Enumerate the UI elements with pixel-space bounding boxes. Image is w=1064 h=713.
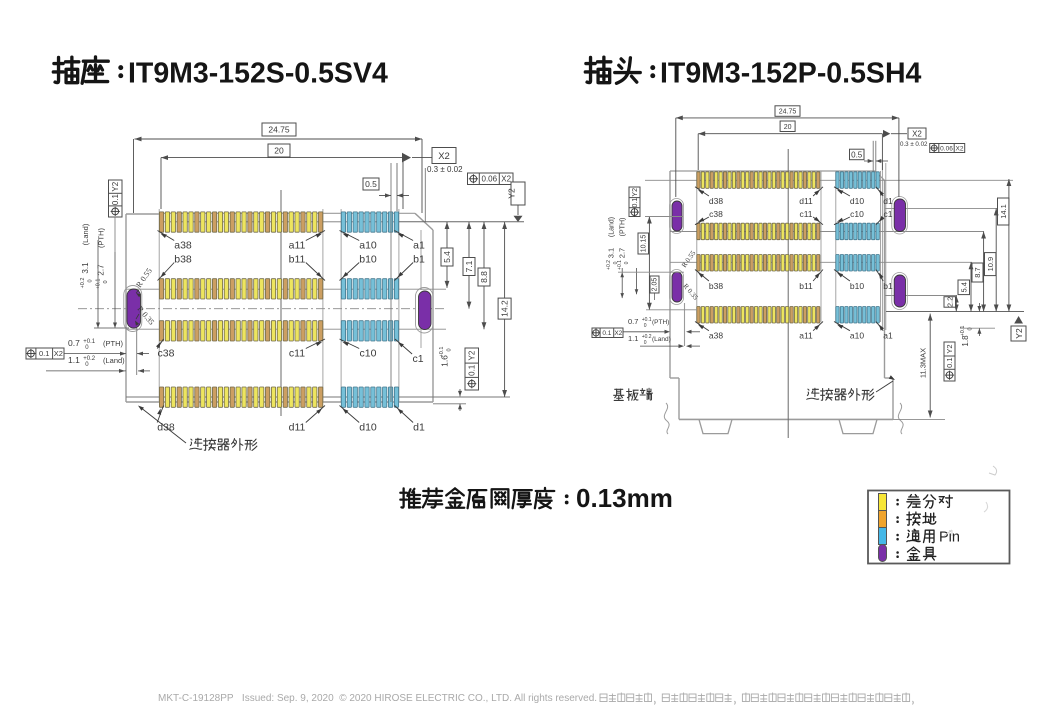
svg-text:2.05: 2.05: [652, 278, 659, 292]
svg-text:d10: d10: [359, 421, 377, 433]
svg-text:11.3MAX: 11.3MAX: [919, 348, 928, 378]
svg-text:X2: X2: [614, 330, 622, 337]
svg-text:0.1: 0.1: [39, 349, 49, 358]
svg-text:a1: a1: [883, 331, 893, 341]
svg-text:3.1: 3.1: [607, 248, 616, 258]
svg-text:+0.1: +0.1: [96, 279, 102, 290]
svg-text:Y2: Y2: [632, 188, 639, 197]
svg-text:d38: d38: [709, 196, 723, 206]
svg-text:d1: d1: [413, 421, 425, 433]
svg-text:0.7: 0.7: [628, 317, 638, 326]
svg-text:X2: X2: [912, 129, 922, 138]
svg-text:0: 0: [103, 280, 109, 283]
svg-text:a38: a38: [174, 239, 192, 251]
svg-text:Y2: Y2: [468, 350, 477, 360]
svg-text:d11: d11: [289, 421, 306, 433]
svg-text:c1: c1: [884, 209, 893, 219]
svg-text:0: 0: [968, 327, 974, 330]
svg-text:0.1: 0.1: [945, 357, 954, 367]
svg-text:24.75: 24.75: [268, 125, 290, 135]
svg-text:0: 0: [624, 261, 630, 264]
svg-text:X2: X2: [501, 175, 511, 184]
svg-text:0.13mm: 0.13mm: [576, 483, 673, 513]
svg-text:b38: b38: [174, 253, 192, 265]
svg-text:0.1: 0.1: [468, 364, 477, 376]
svg-text:(Land): (Land): [652, 336, 671, 343]
svg-text:8.7: 8.7: [973, 267, 982, 277]
svg-text:1.1: 1.1: [68, 355, 80, 365]
svg-text:X2: X2: [956, 145, 964, 152]
svg-text:a11: a11: [289, 239, 306, 251]
svg-text:a11: a11: [799, 331, 813, 341]
svg-text:+0.1: +0.1: [960, 326, 966, 337]
svg-text:(PTH): (PTH): [103, 339, 123, 348]
svg-text:20: 20: [784, 124, 792, 131]
svg-text:0.5: 0.5: [365, 179, 377, 189]
svg-text:Y2: Y2: [1014, 328, 1024, 339]
svg-text:5.4: 5.4: [442, 251, 452, 263]
svg-text:0.1: 0.1: [632, 198, 639, 208]
svg-text:c1: c1: [412, 353, 423, 365]
svg-text:c11: c11: [799, 209, 812, 219]
svg-text:IT9M3-152P-0.5SH4: IT9M3-152P-0.5SH4: [660, 58, 922, 90]
svg-text:0: 0: [644, 323, 647, 329]
svg-text:IT9M3-152S-0.5SV4: IT9M3-152S-0.5SV4: [128, 58, 388, 90]
svg-text:+0.1: +0.1: [439, 347, 445, 358]
svg-text:Y2: Y2: [111, 181, 120, 191]
svg-text:0.3 ± 0.02: 0.3 ± 0.02: [900, 141, 928, 148]
svg-text:0: 0: [447, 348, 453, 351]
svg-text:b10: b10: [850, 281, 864, 291]
svg-text:b1: b1: [883, 281, 893, 291]
svg-text:b38: b38: [709, 281, 723, 291]
svg-text:c10: c10: [360, 347, 377, 359]
svg-text:0: 0: [88, 279, 94, 282]
svg-text:0: 0: [644, 340, 647, 346]
svg-text:(PTH): (PTH): [652, 319, 669, 326]
svg-text:20: 20: [274, 146, 284, 156]
svg-text:+0.2: +0.2: [80, 278, 86, 289]
svg-text:0.1: 0.1: [111, 193, 120, 205]
svg-text:d1: d1: [883, 196, 893, 206]
svg-text:0.7: 0.7: [68, 338, 80, 348]
svg-text:a10: a10: [359, 239, 377, 251]
svg-text:+0.2: +0.2: [606, 260, 612, 270]
svg-text:d10: d10: [850, 196, 864, 206]
svg-text:d11: d11: [799, 196, 813, 206]
svg-text:(Land): (Land): [609, 217, 616, 237]
svg-text:7.1: 7.1: [464, 260, 474, 272]
svg-text:b11: b11: [799, 281, 813, 291]
svg-text:(Land): (Land): [103, 356, 125, 365]
svg-text:14.1: 14.1: [999, 204, 1008, 219]
svg-text:a1: a1: [413, 239, 425, 251]
svg-text:a10: a10: [850, 331, 864, 341]
svg-text:c38: c38: [158, 347, 175, 359]
svg-text:c38: c38: [709, 209, 723, 219]
svg-text:b11: b11: [289, 253, 306, 265]
svg-text:2.2: 2.2: [946, 297, 955, 307]
svg-text:1.1: 1.1: [628, 334, 638, 343]
svg-text:a38: a38: [709, 331, 723, 341]
svg-text:8.8: 8.8: [479, 271, 489, 283]
svg-text:c11: c11: [289, 347, 305, 359]
svg-text:5.4: 5.4: [960, 282, 969, 292]
svg-text:+0.1: +0.1: [83, 339, 96, 345]
svg-text:0.06: 0.06: [482, 175, 498, 184]
svg-text:c10: c10: [850, 209, 864, 219]
svg-text:Y2: Y2: [507, 188, 517, 199]
svg-text:b10: b10: [359, 253, 377, 265]
svg-text:2.7: 2.7: [618, 248, 627, 258]
svg-text:10.9: 10.9: [986, 257, 995, 272]
svg-text:0.5: 0.5: [851, 150, 863, 159]
svg-text:+0.1: +0.1: [642, 317, 652, 323]
svg-text:14.2: 14.2: [500, 300, 510, 317]
svg-text:24.75: 24.75: [779, 109, 797, 116]
svg-text:10.15: 10.15: [641, 235, 648, 253]
svg-text:+0.2: +0.2: [83, 356, 96, 362]
svg-text:3.1: 3.1: [81, 262, 90, 274]
svg-text:(Land): (Land): [81, 223, 90, 245]
svg-text:+0.2: +0.2: [642, 334, 652, 340]
svg-text:(PTH): (PTH): [620, 218, 627, 237]
svg-text:0.3 ± 0.02: 0.3 ± 0.02: [427, 165, 463, 174]
svg-text:0.1: 0.1: [602, 330, 611, 337]
svg-text:X2: X2: [54, 349, 63, 358]
svg-text:0.06: 0.06: [940, 145, 953, 152]
svg-text:b1: b1: [413, 253, 425, 265]
svg-text:Y2: Y2: [945, 344, 954, 353]
svg-text:MKT-C-19128PP Issued: Sep. 9: MKT-C-19128PP Issued: Sep. 9, 2020 © 202…: [158, 693, 600, 704]
svg-text:X2: X2: [438, 151, 450, 162]
